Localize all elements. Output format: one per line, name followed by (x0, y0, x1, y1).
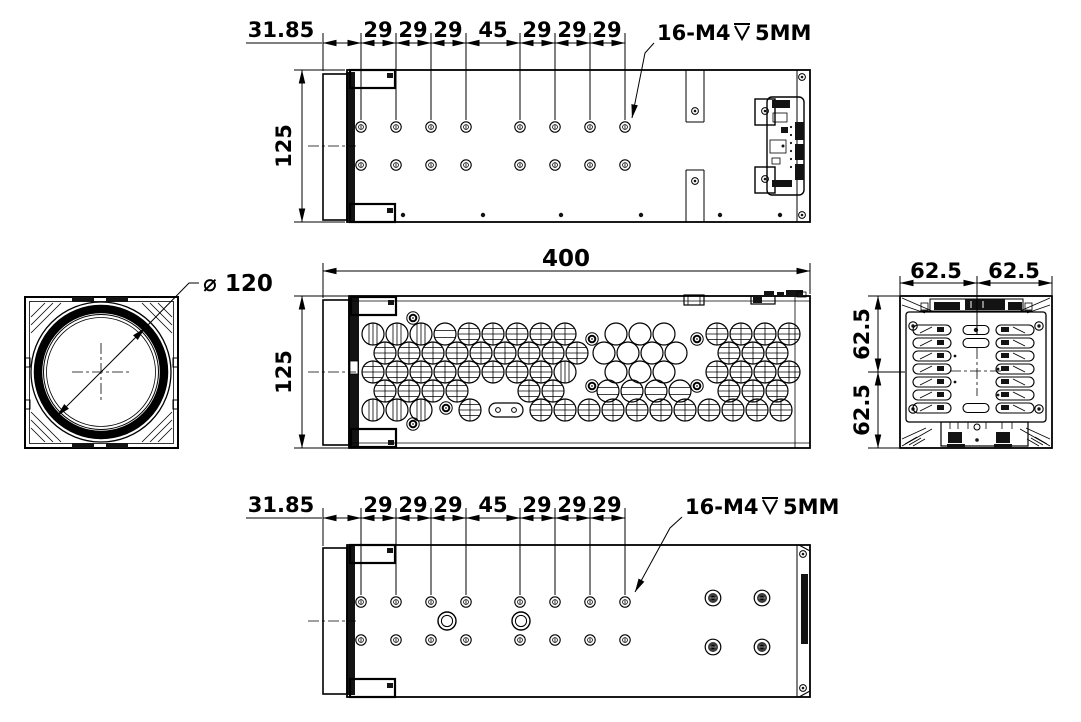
base-screws (705, 590, 770, 655)
top-edge-brackets (684, 290, 806, 305)
dim-label: 400 (542, 246, 590, 272)
side-length-dimension: 400 (323, 246, 810, 298)
edge-rivets (401, 213, 782, 217)
rear-pcb (767, 70, 805, 222)
bottom-thread-callout: 16-M4 5MM (635, 495, 839, 592)
drawing-canvas: 31.85 29 29 29 45 29 29 29 125 16-M4 5MM (0, 0, 1081, 722)
rear-height-dimension: 62.5 62.5 (850, 296, 905, 448)
dim-label: 45 (478, 493, 507, 517)
lens-bezel-top-view (323, 74, 347, 220)
lens-bezel-side-view (323, 300, 349, 445)
dim-label: 29 (433, 493, 462, 517)
dim-label: 125 (272, 124, 296, 168)
m4-holes-bottom-view (356, 597, 630, 645)
callout-label: 5MM (783, 495, 839, 519)
dim-label: ⌀ 120 (203, 271, 273, 297)
bottom-view: 31.85 29 29 29 45 29 29 29 16-M4 5MM (246, 493, 839, 697)
callout-label: 16-M4 (657, 21, 730, 45)
dim-label: 31.85 (248, 493, 314, 517)
rear-view: 62.5 62.5 62.5 62.5 (850, 259, 1052, 448)
locating-hole (512, 612, 530, 630)
rear-top-connectors (920, 299, 1032, 311)
engineering-drawing: 31.85 29 29 29 45 29 29 29 125 16-M4 5MM (0, 0, 1081, 722)
dim-label: 29 (592, 493, 621, 517)
dim-label: 29 (398, 493, 427, 517)
rear-vent-slots (913, 325, 1034, 413)
callout-label: 5MM (755, 21, 811, 45)
dim-label: 29 (363, 493, 392, 517)
dim-label: 29 (522, 18, 551, 42)
rear-bottom-bracket (941, 422, 1028, 448)
housing-body-bottom-view (347, 545, 810, 697)
top-chain-dimension: 31.85 29 29 29 45 29 29 29 (246, 18, 625, 120)
dim-label: 29 (398, 18, 427, 42)
bottom-chain-dimension: 31.85 29 29 29 45 29 29 29 (246, 493, 625, 595)
dim-label: 62.5 (850, 308, 874, 360)
dim-label: 62.5 (988, 259, 1040, 283)
m4-holes-top-view (356, 122, 630, 170)
slot-cutout (489, 403, 523, 417)
locating-hole (438, 612, 456, 630)
dim-label: 29 (557, 493, 586, 517)
dim-label: 29 (557, 18, 586, 42)
housing-body-top-view (347, 70, 810, 222)
dim-label: 45 (478, 18, 507, 42)
bottom-rear-edge (797, 545, 810, 697)
callout-label: 16-M4 (685, 495, 758, 519)
dim-label: 31.85 (248, 18, 314, 42)
dim-label: 62.5 (850, 384, 874, 436)
bracket-tabs (686, 70, 775, 222)
side-view: 400 125 (272, 246, 810, 448)
rear-frame (900, 296, 1052, 448)
dim-label: 125 (272, 350, 296, 394)
top-view: 31.85 29 29 29 45 29 29 29 125 16-M4 5MM (246, 18, 811, 222)
dim-label: 29 (592, 18, 621, 42)
front-frame (25, 297, 178, 448)
dim-label: 62.5 (910, 259, 962, 283)
dim-label: 29 (522, 493, 551, 517)
front-view: ⌀ 120 (25, 271, 273, 448)
vent-pattern (362, 323, 800, 421)
depth-symbol-icon (734, 24, 750, 39)
dim-label: 29 (433, 18, 462, 42)
depth-symbol-icon (762, 498, 778, 513)
dim-label: 29 (363, 18, 392, 42)
